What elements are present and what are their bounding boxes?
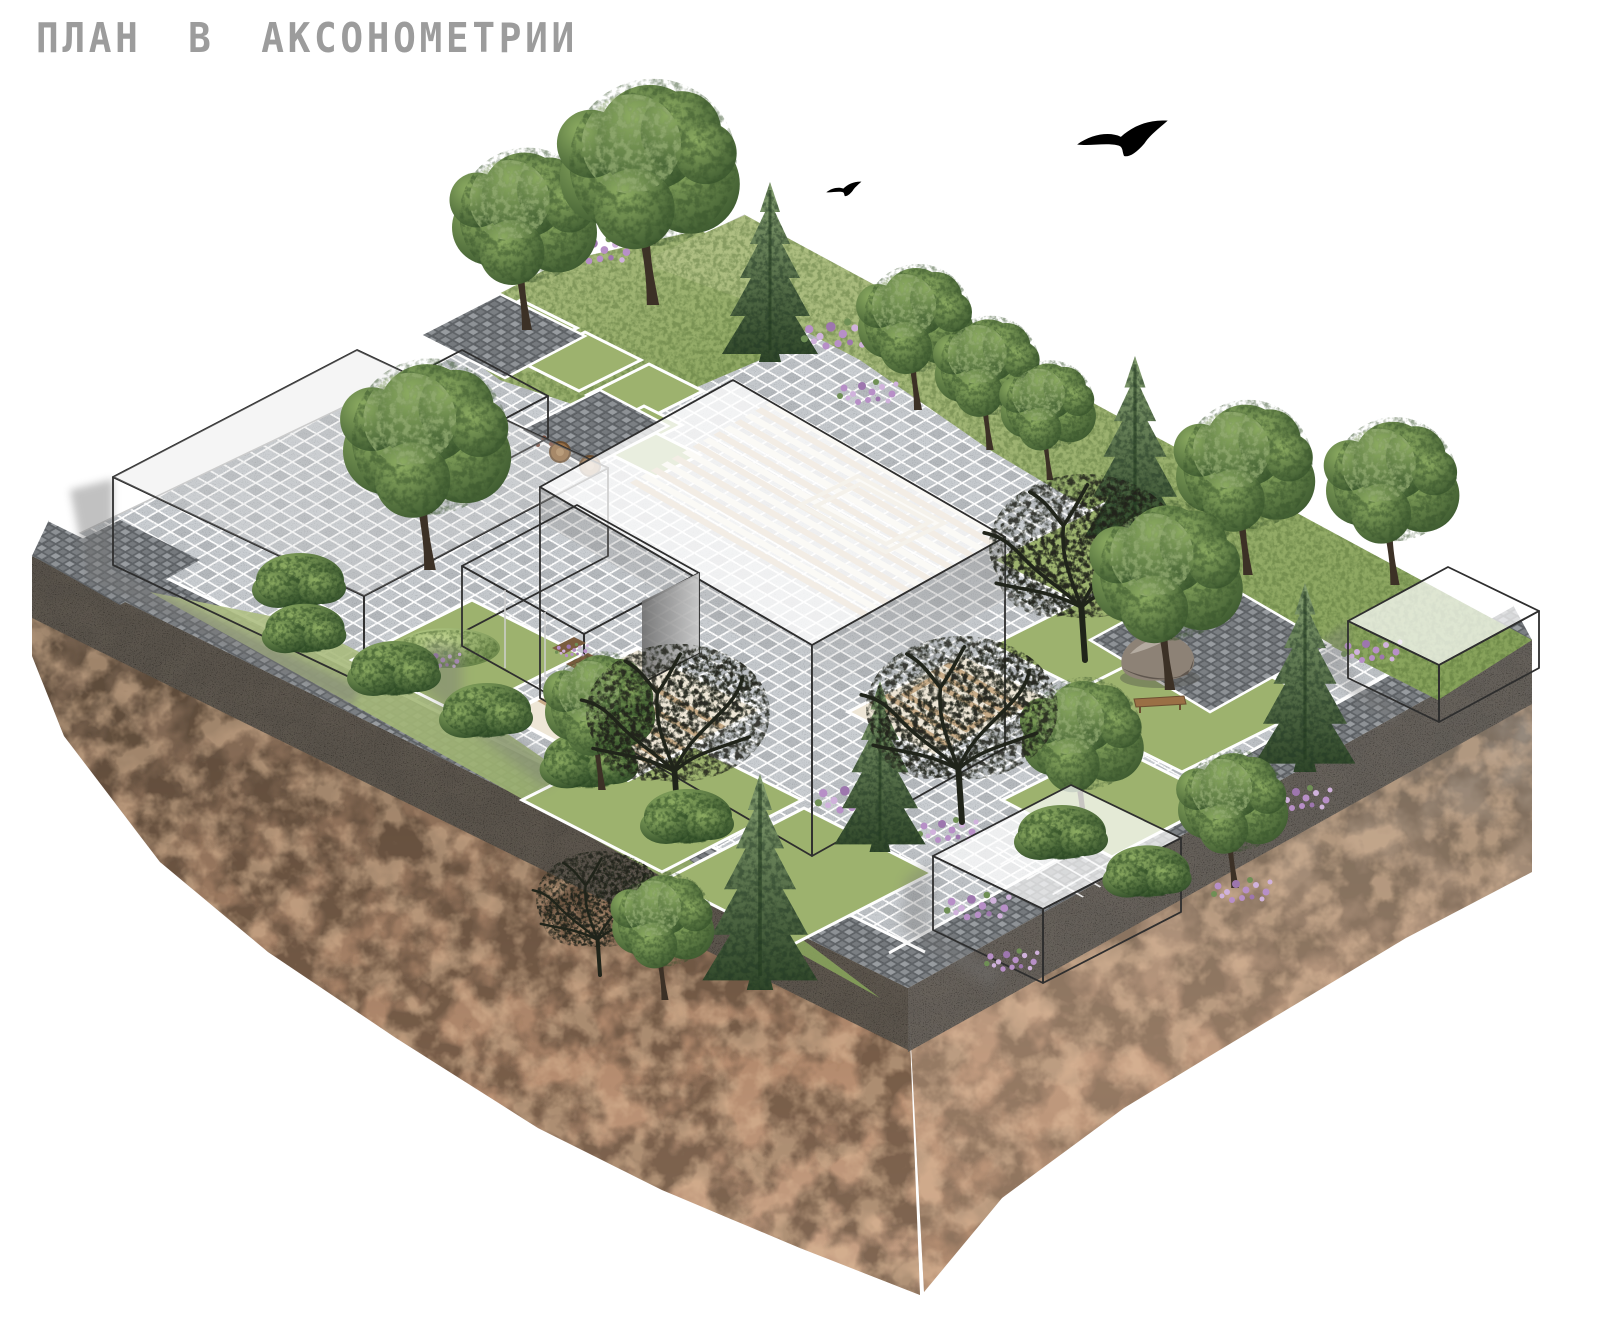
- axonometric-plan-page: ПЛАН В АКСОНОМЕТРИИ: [0, 0, 1600, 1324]
- bird-silhouette-small: [826, 181, 863, 198]
- birds: [826, 120, 1170, 198]
- bird-silhouette-large: [1076, 120, 1170, 160]
- site-axonometric-illustration: [0, 0, 1600, 1324]
